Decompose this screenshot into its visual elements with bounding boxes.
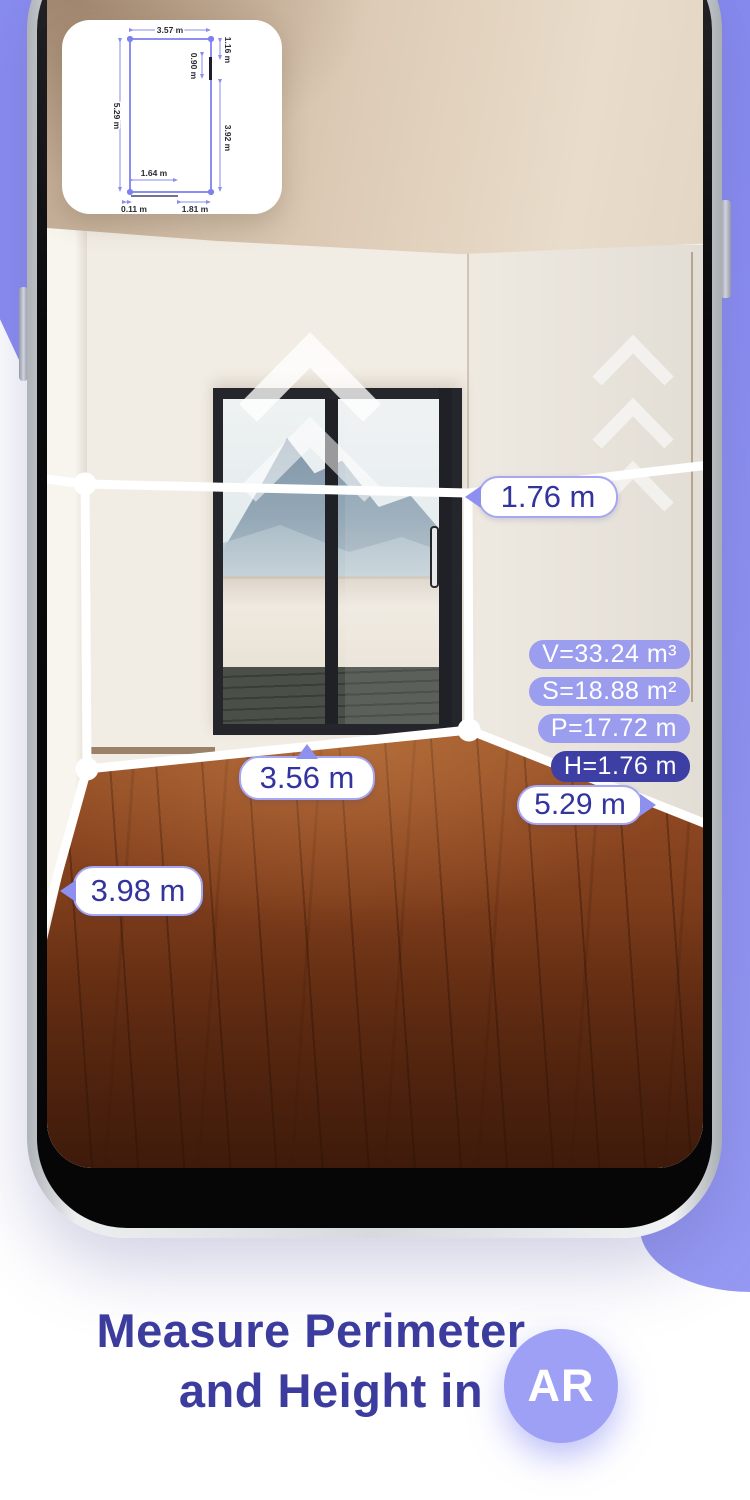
stat-value: V=33.24 m³ xyxy=(542,640,677,669)
measurement-value: 1.76 m xyxy=(501,479,596,515)
plan-dim-left: 5.29 m xyxy=(112,103,122,130)
stat-volume: V=33.24 m³ xyxy=(529,640,690,669)
chevron-up-icon xyxy=(248,432,372,494)
plan-dim-top: 3.57 m xyxy=(157,25,184,35)
measurement-value: 5.29 m xyxy=(534,788,626,822)
pointer-left-icon xyxy=(60,880,76,902)
measurement-label-left-depth: 3.98 m xyxy=(73,866,203,916)
plan-dim-window: 0.90 m xyxy=(189,53,199,80)
ar-badge: AR xyxy=(504,1329,618,1443)
stat-surface: S=18.88 m² xyxy=(529,677,690,706)
caption-text: and Height in xyxy=(179,1364,483,1417)
floor-plan-drawing: 3.57 m 1.16 m 0.90 m 5.29 m 3.92 m 1.64 … xyxy=(62,20,282,214)
pointer-up-icon xyxy=(296,744,318,759)
stat-perimeter: P=17.72 m xyxy=(538,714,690,743)
height-line-right xyxy=(468,493,469,730)
stat-height: H=1.76 m xyxy=(551,751,690,782)
chevron-up-icon xyxy=(597,344,669,381)
anchor-dot xyxy=(458,719,481,742)
measurement-label-right-depth: 5.29 m xyxy=(517,785,643,825)
measurement-label-width: 3.56 m xyxy=(239,756,375,800)
caption-text: Measure Perimeter xyxy=(96,1304,525,1357)
pointer-right-icon xyxy=(640,794,656,816)
floor-plan-card: 3.57 m 1.16 m 0.90 m 5.29 m 3.92 m 1.64 … xyxy=(62,20,282,214)
height-line-left xyxy=(85,484,87,769)
stat-value: P=17.72 m xyxy=(551,714,677,743)
stat-value: H=1.76 m xyxy=(564,752,677,781)
chevron-up-icon xyxy=(597,407,669,444)
chevron-up-icon xyxy=(248,350,372,413)
app-store-screenshot: { "floor_plan": { "top": "3.57 m", "righ… xyxy=(0,0,750,1500)
pointer-left-icon xyxy=(465,486,481,508)
plan-dim-right-top: 1.16 m xyxy=(223,37,233,64)
measurement-value: 3.56 m xyxy=(260,760,355,796)
plan-dim-door: 1.64 m xyxy=(141,168,168,178)
plan-dim-bottom-right: 1.81 m xyxy=(182,204,209,214)
anchor-dot xyxy=(76,758,99,781)
ar-badge-label: AR xyxy=(528,1360,595,1412)
measurement-value: 3.98 m xyxy=(91,873,186,909)
stat-value: S=18.88 m² xyxy=(542,677,677,706)
measurement-label-height: 1.76 m xyxy=(478,476,618,518)
anchor-dot xyxy=(74,473,97,496)
plan-dim-right-bottom: 3.92 m xyxy=(223,125,233,152)
plan-dim-bottom-left: 0.11 m xyxy=(121,204,147,214)
